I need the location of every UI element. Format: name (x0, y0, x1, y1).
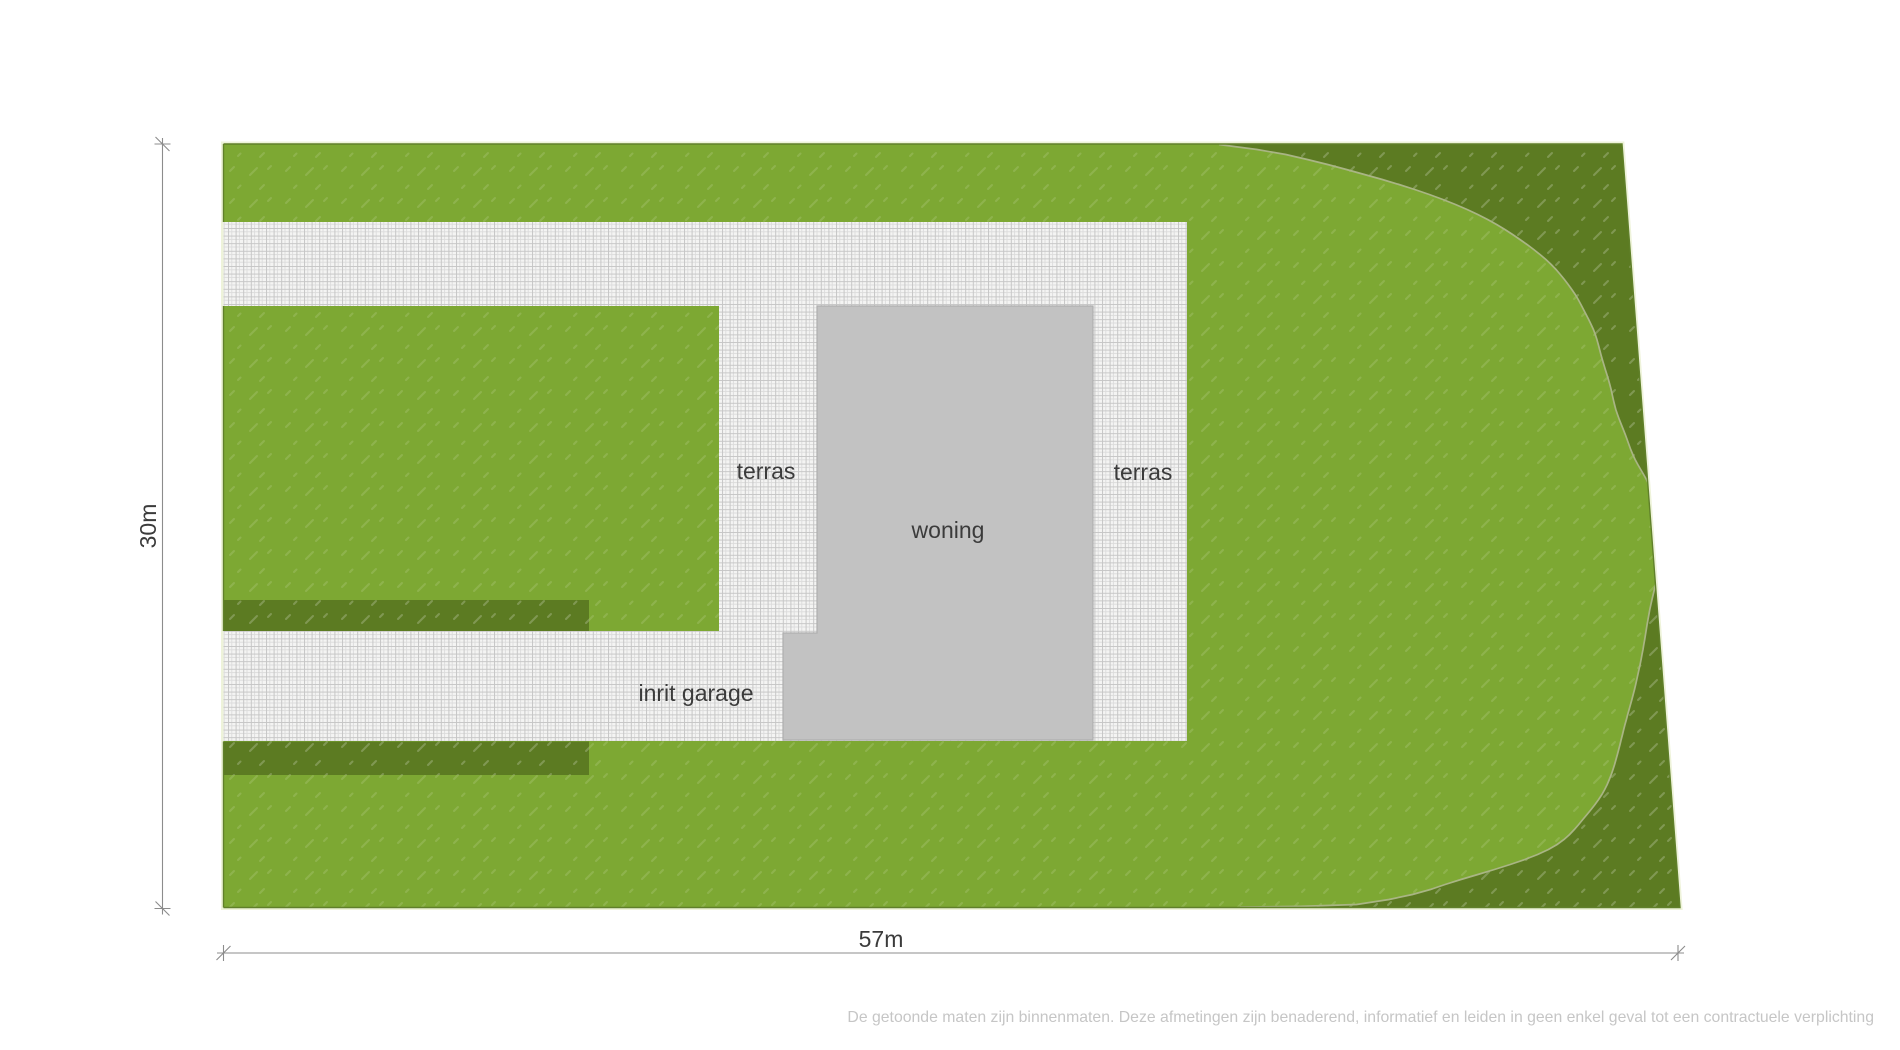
svg-text:terras: terras (737, 458, 796, 484)
svg-text:woning: woning (911, 517, 985, 543)
svg-text:57m: 57m (859, 926, 904, 952)
svg-text:inrit garage: inrit garage (638, 680, 753, 706)
svg-text:30m: 30m (135, 504, 161, 549)
svg-text:De getoonde maten zijn binnenm: De getoonde maten zijn binnenmaten. Deze… (847, 1009, 1874, 1026)
svg-text:terras: terras (1114, 459, 1173, 485)
